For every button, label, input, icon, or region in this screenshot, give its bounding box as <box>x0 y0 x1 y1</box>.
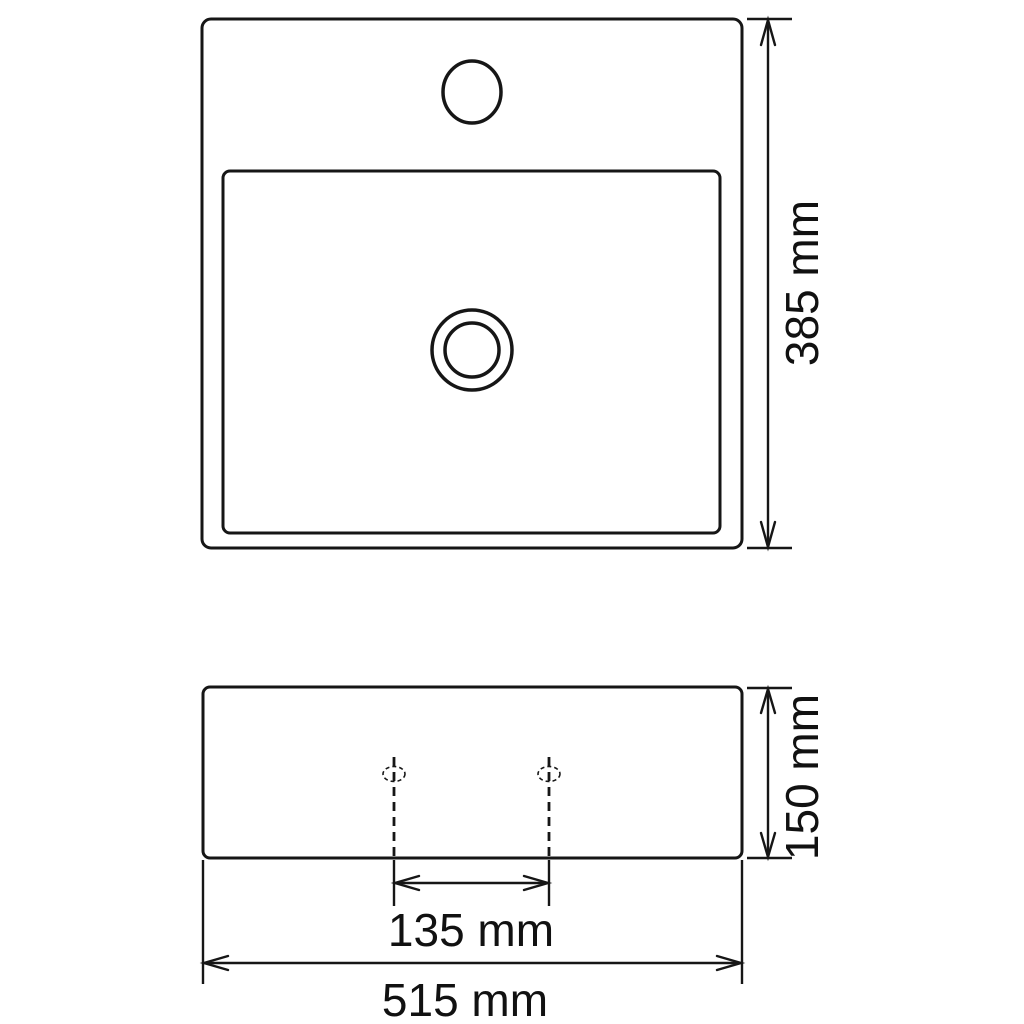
depth-dimension-label: 385 mm <box>776 200 828 366</box>
thickness-dimension-label: 150 mm <box>776 694 828 860</box>
sink-dimension-drawing: 385 mm 150 mm 135 mm <box>0 0 1024 1024</box>
depth-dimension: 385 mm <box>747 19 828 548</box>
top-view <box>202 19 742 548</box>
front-view-outer-edge <box>203 687 742 858</box>
front-view <box>203 687 742 858</box>
top-view-outer-edge <box>202 19 742 548</box>
thickness-dimension: 150 mm <box>747 688 828 860</box>
width-dimension-label: 515 mm <box>382 974 548 1024</box>
technical-drawing-canvas: 385 mm 150 mm 135 mm <box>0 0 1024 1024</box>
faucet-hole <box>443 61 501 123</box>
hole-spacing-dimension: 135 mm <box>388 860 554 956</box>
drain-inner-ring <box>445 323 499 377</box>
basin-bowl-rim <box>223 171 720 533</box>
hole-spacing-dimension-label: 135 mm <box>388 904 554 956</box>
